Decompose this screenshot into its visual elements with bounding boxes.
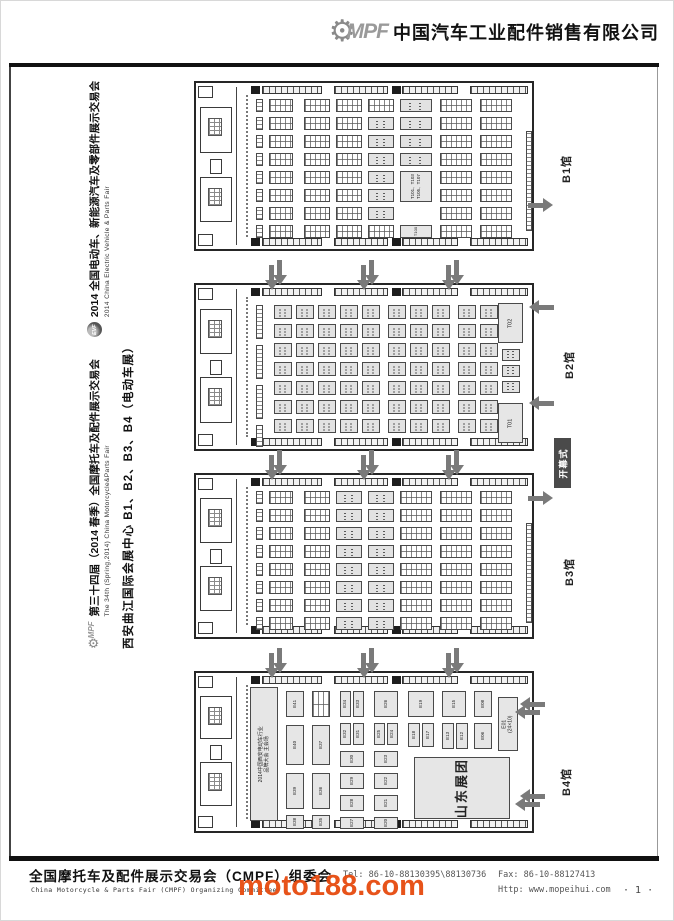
booth-E30: E30 bbox=[340, 751, 364, 767]
booth-block bbox=[480, 599, 512, 612]
booth-strip bbox=[256, 545, 263, 558]
booth-block bbox=[480, 343, 498, 357]
booth-E28-label: E28 bbox=[349, 799, 355, 807]
booth-block bbox=[388, 381, 406, 395]
booth-block bbox=[368, 617, 394, 630]
booth-block bbox=[480, 225, 512, 238]
booth-block bbox=[440, 617, 472, 630]
lobby-room bbox=[200, 107, 232, 153]
flow-arrow-right bbox=[528, 198, 554, 212]
wall-black-block bbox=[251, 478, 260, 486]
booth-block bbox=[440, 189, 472, 202]
hall-name-B1: B1馆 bbox=[558, 155, 574, 183]
booth-E13: E13 bbox=[442, 723, 454, 749]
featured-booth-block: T101、T103 T105、T107 bbox=[400, 171, 432, 202]
booth-block bbox=[269, 153, 293, 166]
booth-E37-label: E37 bbox=[318, 741, 324, 749]
booth-block bbox=[362, 400, 380, 414]
booth-block bbox=[274, 381, 292, 395]
booth-block bbox=[368, 153, 394, 166]
lobby-inner-wall bbox=[236, 289, 237, 445]
flow-arrow-left bbox=[528, 300, 554, 314]
booth-block bbox=[296, 381, 314, 395]
booth-block bbox=[400, 153, 432, 166]
booth-block bbox=[400, 99, 432, 112]
wall-booth-strip bbox=[470, 86, 528, 94]
arrow-head bbox=[515, 797, 525, 811]
booth-block bbox=[318, 362, 336, 376]
booth-block bbox=[480, 135, 512, 148]
escalator-hatch bbox=[208, 509, 222, 527]
booth-block bbox=[340, 362, 358, 376]
booth-block bbox=[480, 171, 512, 184]
featured-booth-block-label: T100 bbox=[414, 227, 419, 236]
booth-strip bbox=[256, 527, 263, 540]
arrow-part bbox=[265, 455, 279, 481]
booth-block bbox=[458, 343, 476, 357]
column-dots bbox=[246, 487, 248, 625]
booth-E33: E33 bbox=[353, 691, 364, 717]
booth-strip bbox=[256, 117, 263, 130]
booth-block bbox=[480, 545, 512, 558]
booth-block bbox=[388, 305, 406, 319]
booth-block bbox=[458, 305, 476, 319]
booth-block bbox=[296, 305, 314, 319]
booth-block bbox=[274, 400, 292, 414]
booth-block bbox=[296, 343, 314, 357]
booth-E37: E37 bbox=[312, 725, 330, 765]
wall-black-block bbox=[251, 820, 260, 828]
booth-strip bbox=[256, 491, 263, 504]
lobby-corner-room bbox=[198, 478, 213, 490]
booth-E41: E41 bbox=[286, 691, 304, 717]
booth-block bbox=[269, 207, 293, 220]
escalator-hatch bbox=[208, 773, 222, 791]
escalator-hatch bbox=[208, 577, 222, 595]
booth-block bbox=[340, 343, 358, 357]
conference-hall-block: 2014中国西安电动车行业 品牌大会 主会场 bbox=[250, 687, 278, 821]
booth-block bbox=[400, 581, 432, 594]
escalator-hatch bbox=[208, 320, 222, 338]
wall-booth-strip bbox=[470, 676, 528, 684]
booth-block bbox=[440, 509, 472, 522]
arrow-head bbox=[442, 280, 456, 290]
booth-E39: E39 bbox=[286, 773, 304, 809]
featured-booth-T02-label: T02 bbox=[507, 318, 514, 327]
booth-block bbox=[362, 324, 380, 338]
wall-black-block bbox=[251, 288, 260, 296]
flow-arrow-down bbox=[365, 260, 379, 286]
booth-block bbox=[480, 419, 498, 433]
wall-black-block bbox=[392, 86, 401, 94]
booth-block bbox=[318, 381, 336, 395]
booth-block bbox=[269, 581, 293, 594]
wall-booth-strip bbox=[262, 438, 322, 446]
lobby-inner-wall bbox=[236, 677, 237, 827]
booth-E20: E20 bbox=[374, 817, 398, 829]
footer-http: Http: www.mopeihui.com bbox=[498, 885, 611, 895]
hall-name-B4: B4馆 bbox=[558, 768, 574, 796]
booth-block bbox=[400, 563, 432, 576]
booth-block bbox=[368, 563, 394, 576]
hall-maps-layer: T101、T103 T105、T107T100B1馆T02T01B2馆开幕式B3… bbox=[1, 1, 673, 920]
lobby-corner-room bbox=[198, 816, 213, 828]
arrow-part bbox=[265, 265, 279, 291]
wall-booth-strip bbox=[334, 238, 388, 246]
booth-E27: E27 bbox=[340, 817, 364, 829]
booth-strip bbox=[526, 131, 532, 231]
booth-E36: E36 bbox=[312, 773, 330, 809]
booth-block bbox=[318, 400, 336, 414]
booth-block bbox=[362, 419, 380, 433]
booth-block bbox=[480, 400, 498, 414]
wall-booth-strip bbox=[402, 438, 458, 446]
hall-name-B3: B3馆 bbox=[561, 558, 577, 586]
booth-block bbox=[440, 491, 472, 504]
booth-block bbox=[336, 171, 362, 184]
booth-E38: E38 bbox=[286, 815, 304, 829]
booth-E20-label: E20 bbox=[383, 819, 389, 827]
booth-block bbox=[432, 305, 450, 319]
booth-strip bbox=[256, 617, 263, 630]
booth-E34-label: E34 bbox=[343, 700, 349, 708]
wall-booth-strip bbox=[262, 86, 322, 94]
flow-arrow-down bbox=[273, 648, 287, 674]
booth-strip bbox=[256, 189, 263, 202]
booth-block bbox=[440, 581, 472, 594]
booth-block bbox=[440, 527, 472, 540]
booth-E27-label: E27 bbox=[349, 819, 355, 827]
lobby-connector bbox=[210, 745, 222, 760]
booth-E34: E34 bbox=[340, 691, 351, 717]
flow-arrow-left bbox=[528, 396, 554, 410]
arrow-part bbox=[528, 198, 554, 212]
booth-block bbox=[274, 343, 292, 357]
wall-booth-strip bbox=[470, 820, 528, 828]
booth-block bbox=[318, 324, 336, 338]
escalator-hatch bbox=[208, 118, 222, 136]
booth-block bbox=[410, 305, 428, 319]
wall-booth-strip bbox=[334, 438, 388, 446]
hall-map-B1: T101、T103 T105、T107T100 bbox=[194, 81, 534, 251]
booth-block bbox=[440, 545, 472, 558]
booth-block bbox=[304, 581, 330, 594]
flow-arrow-down bbox=[273, 450, 287, 476]
column-dots bbox=[246, 95, 248, 237]
booth-block bbox=[304, 545, 330, 558]
booth-E22: E22 bbox=[374, 773, 398, 789]
booth-E19-label: E19 bbox=[418, 700, 424, 708]
booth-block bbox=[458, 400, 476, 414]
booth-E19: E19 bbox=[408, 691, 434, 717]
flow-arrow-down bbox=[365, 648, 379, 674]
booth-block bbox=[362, 305, 380, 319]
booth-E25: E25 bbox=[374, 723, 385, 745]
booth-block bbox=[432, 362, 450, 376]
booth-E32: E32 bbox=[340, 723, 351, 745]
booth-E08-label: E08 bbox=[480, 700, 486, 708]
booth-block bbox=[304, 189, 330, 202]
booth-E06: E06 bbox=[474, 723, 492, 749]
wall-black-block bbox=[251, 676, 260, 684]
booth-block bbox=[400, 599, 432, 612]
booth-block bbox=[340, 381, 358, 395]
booth-block bbox=[410, 324, 428, 338]
booth-block bbox=[304, 225, 330, 238]
wall-black-block bbox=[251, 238, 260, 246]
booth-block bbox=[312, 691, 330, 717]
booth-E13-label: E13 bbox=[445, 732, 451, 740]
booth-block bbox=[296, 362, 314, 376]
page-number: · 1 · bbox=[623, 885, 653, 896]
booth-E40: E40 bbox=[286, 725, 304, 765]
booth-strip bbox=[526, 523, 532, 623]
hall-map-B3 bbox=[194, 473, 534, 639]
lobby-corner-room bbox=[198, 434, 213, 446]
booth-block bbox=[336, 189, 362, 202]
booth-E15-label: E15 bbox=[451, 700, 457, 708]
arrow-head bbox=[265, 280, 279, 290]
booth-E25-label: E25 bbox=[377, 730, 383, 738]
booth-block bbox=[480, 207, 512, 220]
arrow-head bbox=[529, 396, 539, 410]
booth-block bbox=[440, 225, 472, 238]
flow-arrow-down bbox=[365, 450, 379, 476]
lobby-connector bbox=[210, 360, 222, 375]
booth-block bbox=[480, 617, 512, 630]
wall-black-block bbox=[392, 478, 401, 486]
booth-block bbox=[368, 117, 394, 130]
booth-block bbox=[304, 171, 330, 184]
lobby-room bbox=[200, 177, 232, 223]
booth-block bbox=[336, 527, 362, 540]
arrow-shaft bbox=[523, 710, 540, 715]
booth-E21-label: E21 bbox=[383, 799, 389, 807]
booth-E30-label: E30 bbox=[349, 755, 355, 763]
booth-block bbox=[336, 599, 362, 612]
lobby-corner-room bbox=[198, 234, 213, 246]
booth-strip bbox=[256, 171, 263, 184]
booth-block bbox=[304, 153, 330, 166]
booth-block bbox=[440, 563, 472, 576]
wall-black-block bbox=[392, 676, 401, 684]
booth-block bbox=[269, 135, 293, 148]
arrow-shaft bbox=[537, 401, 554, 406]
lobby-connector bbox=[210, 159, 222, 174]
booth-block bbox=[458, 362, 476, 376]
booth-E35: E35 bbox=[312, 815, 330, 829]
booth-block bbox=[304, 617, 330, 630]
wall-booth-strip bbox=[470, 238, 528, 246]
flow-arrow-left bbox=[519, 789, 545, 803]
footer-fax: Fax: 86-10-88127413 bbox=[498, 870, 595, 880]
booth-block bbox=[304, 563, 330, 576]
booth-block bbox=[274, 419, 292, 433]
booth-block bbox=[480, 362, 498, 376]
booth-strip bbox=[256, 599, 263, 612]
booth-E01-label: E01 (24×10) bbox=[502, 715, 515, 732]
watermark: moto188.com bbox=[238, 870, 425, 903]
lobby-corner-room bbox=[198, 622, 213, 634]
booth-E22-label: E22 bbox=[383, 777, 389, 785]
booth-block bbox=[304, 135, 330, 148]
wall-booth-strip bbox=[470, 478, 528, 486]
booth-block bbox=[458, 419, 476, 433]
wall-booth-strip bbox=[262, 238, 322, 246]
booth-block bbox=[432, 400, 450, 414]
opening-ceremony-label: 开幕式 bbox=[556, 448, 569, 478]
booth-block bbox=[336, 117, 362, 130]
booth-block bbox=[336, 207, 362, 220]
arrow-part bbox=[357, 653, 371, 679]
lobby-room bbox=[200, 696, 232, 740]
booth-block bbox=[480, 527, 512, 540]
arrow-head bbox=[265, 470, 279, 480]
booth-block bbox=[336, 153, 362, 166]
booth-strip bbox=[256, 385, 263, 419]
booth-E29-label: E29 bbox=[349, 777, 355, 785]
wall-booth-strip bbox=[402, 238, 458, 246]
shandong-group-block: 山东展团 bbox=[414, 757, 510, 819]
booth-block bbox=[274, 362, 292, 376]
booth-block bbox=[440, 117, 472, 130]
booth-block bbox=[410, 362, 428, 376]
escalator-hatch bbox=[208, 388, 222, 406]
booth-block bbox=[432, 419, 450, 433]
booth-block bbox=[432, 381, 450, 395]
featured-booth-T01: T01 bbox=[498, 403, 523, 443]
booth-block bbox=[296, 324, 314, 338]
booth-block bbox=[432, 343, 450, 357]
hall-map-B2: T02T01 bbox=[194, 283, 534, 451]
booth-strip bbox=[256, 581, 263, 594]
booth-block bbox=[368, 491, 394, 504]
booth-E21: E21 bbox=[374, 795, 398, 811]
arrow-shaft bbox=[537, 305, 554, 310]
lobby-corner-room bbox=[198, 288, 213, 300]
booth-block bbox=[318, 343, 336, 357]
booth-block bbox=[480, 99, 512, 112]
arrow-part bbox=[528, 300, 554, 314]
arrow-head bbox=[543, 198, 553, 212]
booth-block bbox=[336, 545, 362, 558]
booth-E12-label: E12 bbox=[459, 732, 465, 740]
arrow-part bbox=[442, 265, 456, 291]
booth-strip bbox=[256, 345, 263, 379]
booth-block bbox=[296, 400, 314, 414]
escalator-hatch bbox=[208, 188, 222, 206]
flow-arrow-down bbox=[450, 260, 464, 286]
booth-E26-label: E26 bbox=[383, 700, 389, 708]
booth-block bbox=[336, 581, 362, 594]
flow-arrow-down bbox=[273, 260, 287, 286]
wall-booth-strip bbox=[402, 820, 458, 828]
booth-block bbox=[340, 305, 358, 319]
booth-block bbox=[400, 135, 432, 148]
arrow-part bbox=[265, 653, 279, 679]
booth-E32-label: E32 bbox=[343, 730, 349, 738]
arrow-head bbox=[265, 668, 279, 678]
booth-block bbox=[368, 207, 394, 220]
booth-block bbox=[480, 324, 498, 338]
booth-block bbox=[400, 527, 432, 540]
arrow-part bbox=[442, 455, 456, 481]
booth-block bbox=[269, 117, 293, 130]
booth-block bbox=[340, 324, 358, 338]
wall-black-block bbox=[392, 238, 401, 246]
booth-strip bbox=[256, 153, 263, 166]
booth-block bbox=[340, 419, 358, 433]
booth-block bbox=[336, 491, 362, 504]
booth-block bbox=[269, 509, 293, 522]
booth-block bbox=[362, 362, 380, 376]
booth-block bbox=[502, 381, 520, 393]
booth-block bbox=[269, 563, 293, 576]
arrow-part bbox=[528, 491, 554, 505]
booth-block bbox=[368, 545, 394, 558]
featured-booth-block-label: T101、T103 T105、T107 bbox=[410, 174, 421, 199]
booth-block bbox=[480, 117, 512, 130]
arrow-part bbox=[514, 797, 540, 811]
booth-block bbox=[340, 400, 358, 414]
lobby-room bbox=[200, 309, 232, 354]
wall-black-block bbox=[251, 86, 260, 94]
booth-block bbox=[480, 563, 512, 576]
booth-block bbox=[480, 581, 512, 594]
booth-block bbox=[368, 527, 394, 540]
booth-block bbox=[269, 225, 293, 238]
booth-E31-label: E31 bbox=[356, 730, 362, 738]
booth-block bbox=[269, 491, 293, 504]
booth-block bbox=[400, 617, 432, 630]
booth-block bbox=[502, 349, 520, 361]
conference-hall-block-label: 2014中国西安电动车行业 品牌大会 主会场 bbox=[258, 726, 271, 782]
scanned-page: ⚙ MPF 中国汽车工业配件销售有限公司 ⚙ MPF 第三十四届（2014 春季… bbox=[0, 0, 674, 921]
booth-block bbox=[388, 343, 406, 357]
booth-block bbox=[269, 599, 293, 612]
lobby-room bbox=[200, 498, 232, 543]
booth-block bbox=[304, 599, 330, 612]
arrow-head bbox=[357, 280, 371, 290]
booth-block bbox=[269, 99, 293, 112]
booth-block bbox=[480, 381, 498, 395]
booth-strip bbox=[256, 99, 263, 112]
shandong-group-block-label: 山东展团 bbox=[454, 758, 470, 818]
booth-block bbox=[336, 225, 362, 238]
arrow-head bbox=[543, 491, 553, 505]
booth-E39-label: E39 bbox=[292, 787, 298, 795]
booth-E17: E17 bbox=[422, 723, 434, 747]
arrow-head bbox=[442, 470, 456, 480]
booth-block bbox=[304, 527, 330, 540]
booth-E24-label: E24 bbox=[390, 730, 396, 738]
booth-strip bbox=[256, 425, 263, 447]
lobby-inner-wall bbox=[236, 87, 237, 245]
booth-E26: E26 bbox=[374, 691, 398, 717]
booth-block bbox=[368, 135, 394, 148]
booth-strip bbox=[256, 135, 263, 148]
booth-block bbox=[336, 135, 362, 148]
booth-block bbox=[400, 545, 432, 558]
booth-block bbox=[336, 99, 362, 112]
booth-strip bbox=[256, 305, 263, 339]
booth-block bbox=[410, 343, 428, 357]
wall-booth-strip bbox=[402, 86, 458, 94]
booth-E36-label: E36 bbox=[318, 787, 324, 795]
booth-block bbox=[274, 324, 292, 338]
booth-block bbox=[304, 207, 330, 220]
booth-block bbox=[274, 305, 292, 319]
